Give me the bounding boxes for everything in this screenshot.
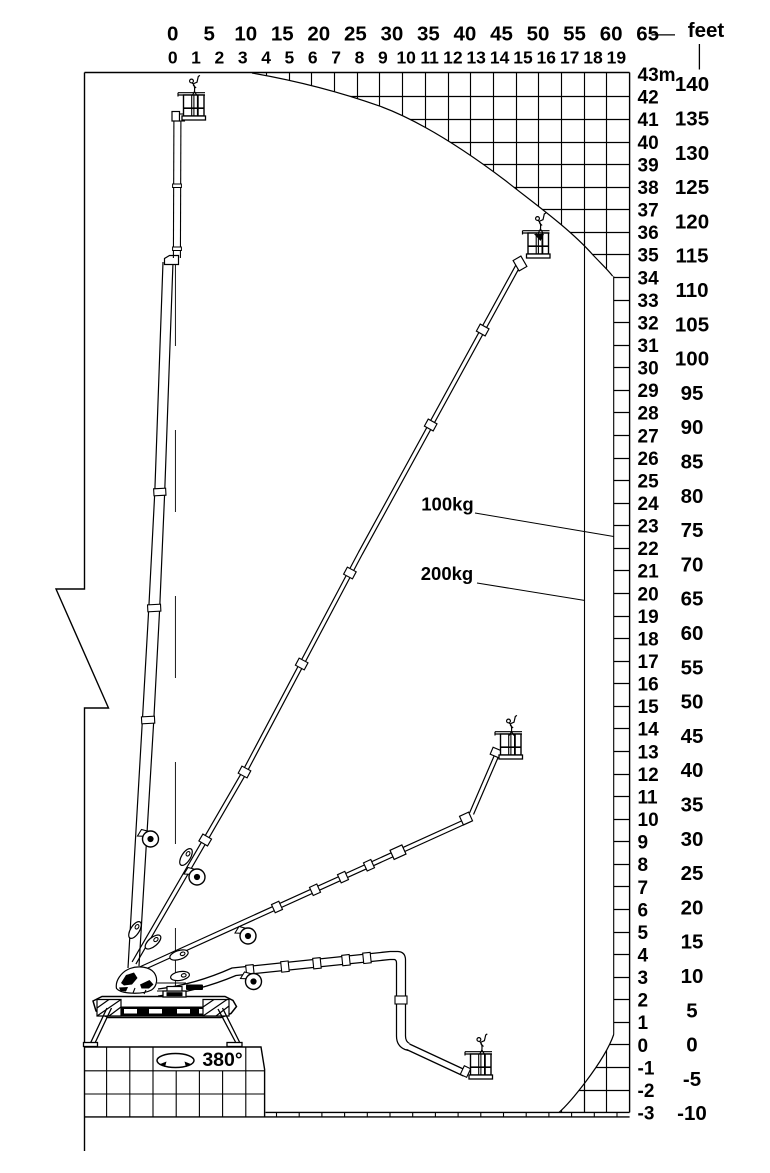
svg-text:34: 34 [638,268,660,289]
svg-text:20: 20 [681,896,704,919]
svg-text:8: 8 [638,855,649,876]
svg-text:6: 6 [308,48,318,68]
svg-text:55: 55 [681,656,704,679]
svg-text:-5: -5 [683,1068,701,1091]
svg-text:100kg: 100kg [421,494,473,515]
svg-text:5: 5 [638,923,649,944]
svg-text:200kg: 200kg [421,563,473,584]
svg-text:90: 90 [681,416,704,439]
svg-text:31: 31 [638,336,660,357]
svg-text:30: 30 [380,23,403,46]
svg-text:40: 40 [681,759,704,782]
svg-text:24: 24 [638,494,660,515]
svg-text:50: 50 [527,23,550,46]
svg-text:45: 45 [490,23,513,46]
svg-text:5: 5 [285,48,295,68]
svg-text:4: 4 [638,946,649,967]
svg-text:60: 60 [681,622,704,645]
svg-text:65: 65 [681,588,704,611]
svg-text:15: 15 [681,931,704,954]
svg-text:38: 38 [638,178,659,199]
svg-text:65: 65 [636,23,659,46]
svg-text:17: 17 [560,48,579,68]
svg-text:17: 17 [638,652,659,673]
svg-text:13: 13 [638,742,659,763]
svg-text:15: 15 [271,23,294,46]
svg-text:14: 14 [638,720,660,741]
svg-text:120: 120 [675,210,709,233]
svg-text:7: 7 [331,48,341,68]
svg-text:115: 115 [675,245,708,268]
svg-text:-10: -10 [677,1102,707,1125]
svg-text:45: 45 [681,725,704,748]
svg-text:95: 95 [681,382,704,405]
svg-text:80: 80 [681,485,704,508]
svg-text:18: 18 [638,629,659,650]
svg-text:25: 25 [344,23,367,46]
svg-text:19: 19 [638,607,659,628]
svg-text:16: 16 [638,675,659,696]
svg-text:35: 35 [681,794,704,817]
svg-text:6: 6 [638,900,649,921]
svg-text:5: 5 [203,23,214,46]
svg-text:16: 16 [537,48,557,68]
svg-text:26: 26 [638,449,659,470]
svg-text:40: 40 [638,133,659,154]
svg-text:135: 135 [675,108,709,131]
svg-text:35: 35 [638,246,660,267]
svg-text:5: 5 [686,999,697,1022]
svg-text:15: 15 [638,697,660,718]
svg-text:20: 20 [307,23,330,46]
svg-text:2: 2 [638,991,649,1012]
svg-text:-3: -3 [638,1104,655,1125]
svg-text:2: 2 [215,48,225,68]
svg-text:110: 110 [675,279,708,302]
svg-text:feet: feet [688,19,725,42]
svg-text:21: 21 [638,562,660,583]
svg-text:15: 15 [513,48,533,68]
svg-text:43m: 43m [638,65,676,86]
svg-text:9: 9 [638,833,649,854]
svg-text:3: 3 [238,48,248,68]
svg-text:55: 55 [563,23,586,46]
svg-text:41: 41 [638,110,660,131]
svg-text:130: 130 [675,142,709,165]
svg-text:-1: -1 [638,1058,655,1079]
svg-text:-2: -2 [638,1081,655,1102]
svg-text:37: 37 [638,201,659,222]
svg-text:10: 10 [681,965,704,988]
svg-text:125: 125 [675,176,709,199]
svg-text:30: 30 [681,828,704,851]
svg-text:39: 39 [638,155,659,176]
svg-text:11: 11 [638,788,659,809]
svg-text:35: 35 [417,23,440,46]
svg-text:10: 10 [638,810,659,831]
svg-text:60: 60 [600,23,623,46]
svg-text:11: 11 [420,48,439,68]
svg-text:30: 30 [638,359,659,380]
svg-text:20: 20 [638,584,659,605]
svg-text:100: 100 [675,348,709,371]
svg-text:32: 32 [638,313,659,334]
svg-text:13: 13 [466,48,486,68]
svg-text:70: 70 [681,553,704,576]
svg-text:380°: 380° [202,1049,242,1071]
svg-text:9: 9 [378,48,388,68]
svg-text:1: 1 [638,1013,649,1034]
svg-text:10: 10 [234,23,257,46]
svg-text:7: 7 [638,878,649,899]
svg-text:75: 75 [681,519,704,542]
svg-text:25: 25 [638,471,660,492]
svg-text:0: 0 [638,1036,649,1057]
svg-text:105: 105 [675,313,709,336]
svg-text:4: 4 [261,48,271,68]
svg-text:28: 28 [638,404,659,425]
svg-text:23: 23 [638,517,659,538]
svg-text:85: 85 [681,451,704,474]
svg-text:1: 1 [191,48,201,68]
svg-text:0: 0 [167,23,178,46]
svg-text:25: 25 [681,862,704,885]
svg-text:19: 19 [607,48,627,68]
svg-text:50: 50 [681,691,704,714]
svg-text:3: 3 [638,968,649,989]
svg-text:10: 10 [396,48,416,68]
svg-text:33: 33 [638,291,659,312]
svg-text:22: 22 [638,539,659,560]
svg-text:12: 12 [443,48,463,68]
svg-text:0: 0 [168,48,178,68]
svg-text:0: 0 [686,1034,697,1057]
svg-text:27: 27 [638,426,659,447]
svg-text:8: 8 [355,48,365,68]
svg-text:29: 29 [638,381,659,402]
svg-text:140: 140 [675,73,709,96]
svg-text:14: 14 [490,48,510,68]
svg-text:36: 36 [638,223,659,244]
svg-text:12: 12 [638,765,659,786]
svg-text:42: 42 [638,88,659,109]
svg-text:40: 40 [453,23,476,46]
svg-text:18: 18 [583,48,603,68]
